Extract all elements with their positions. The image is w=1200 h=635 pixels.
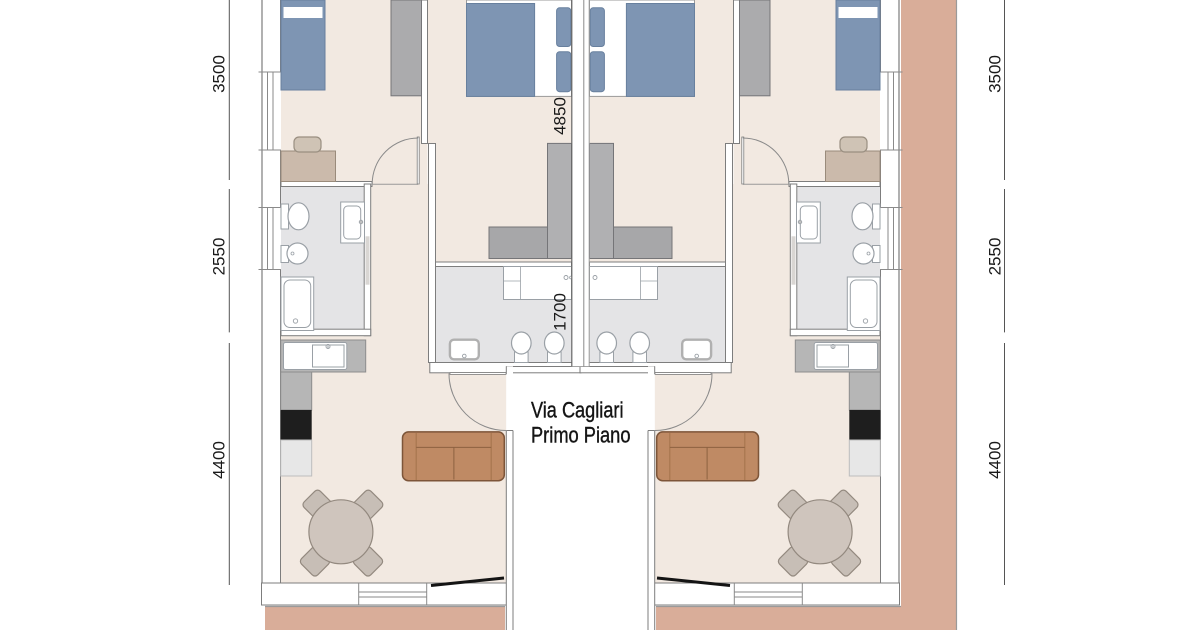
svg-text:2550: 2550 [210,238,229,276]
svg-text:3500: 3500 [986,55,1005,93]
svg-text:2550: 2550 [986,238,1005,276]
svg-text:4850: 4850 [551,97,570,135]
svg-text:Primo Piano: Primo Piano [531,423,631,448]
svg-text:1700: 1700 [551,293,570,331]
svg-text:4400: 4400 [210,441,229,479]
svg-text:Via Cagliari: Via Cagliari [531,398,624,423]
svg-text:4400: 4400 [986,441,1005,479]
svg-text:3500: 3500 [210,55,229,93]
